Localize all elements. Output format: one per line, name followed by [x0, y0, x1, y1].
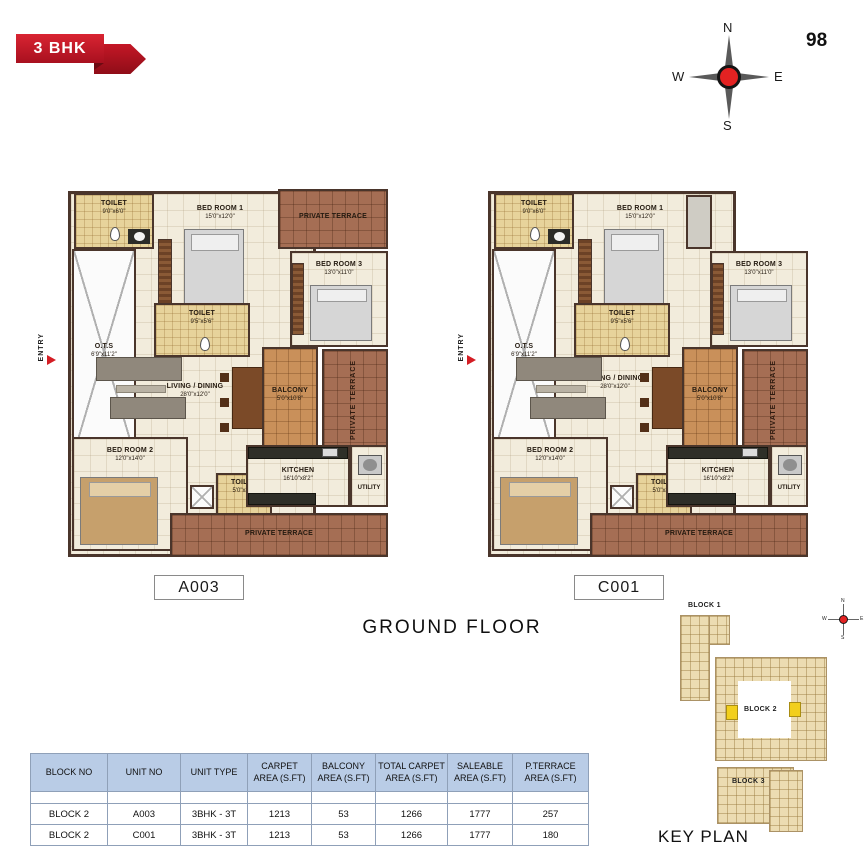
col-header: SALEABLE AREA (S.FT): [448, 754, 513, 792]
bedroom-3-room: BED ROOM 3 13'0"x11'0": [710, 251, 808, 347]
cell: 3BHK - 3T: [181, 804, 248, 825]
private-terrace-top: PRIVATE TERRACE: [278, 189, 388, 249]
sofa-icon: [516, 357, 602, 381]
col-header: TOTAL CARPET AREA (S.FT): [376, 754, 448, 792]
block-3-cluster: [769, 770, 803, 832]
table-header-row: BLOCK NO UNIT NO UNIT TYPE CARPET AREA (…: [31, 754, 589, 792]
floorplan-a003: TOILET 9'0"x6'0" PRIVATE TERRACE BED ROO…: [60, 185, 390, 605]
cell: 180: [513, 825, 589, 846]
compass-east-label: E: [774, 69, 783, 84]
ots-shaft: O.T.S 6'9"x11'2": [72, 249, 136, 455]
bed-icon: [730, 285, 792, 341]
compass-center-dot: [717, 65, 741, 89]
cell: 1777: [448, 825, 513, 846]
mini-compass-icon: N S W E: [826, 601, 860, 639]
cell: C001: [108, 825, 181, 846]
key-plan: BLOCK 1 BLOCK 2 BLOCK 3 N S W E KEY PLAN: [648, 593, 864, 855]
cell: 1213: [248, 804, 312, 825]
bed-icon: [604, 229, 664, 305]
entry-arrow-icon: [467, 355, 476, 365]
kitchen-room: KITCHEN 16'10"x8'2": [246, 445, 350, 507]
cell: 1777: [448, 804, 513, 825]
col-header: UNIT TYPE: [181, 754, 248, 792]
bed-icon: [80, 477, 158, 545]
block-2-label: BLOCK 2: [744, 706, 777, 713]
balcony: BALCONY 5'0"x10'8": [262, 347, 318, 447]
cell: A003: [108, 804, 181, 825]
brochure-page: 3 BHK N S W E 98 TOILET 9'0"x6'0" PRIVAT…: [0, 0, 864, 864]
block-1-label: BLOCK 1: [688, 602, 721, 609]
col-header: P.TERRACE AREA (S.FT): [513, 754, 589, 792]
ots-shaft: O.T.S 6'9"x11'2": [492, 249, 556, 455]
cell: 257: [513, 804, 589, 825]
wardrobe-icon: [712, 263, 724, 335]
dining-chairs-icon: [220, 373, 229, 382]
washbasin-icon: [128, 229, 150, 244]
floorplan-c001: TOILET 9'0"x6'0" BED ROOM 1 15'0"x12'0" …: [480, 185, 810, 605]
entry-arrow-icon: [47, 355, 56, 365]
sofa-icon: [96, 357, 182, 381]
floor-title: GROUND FLOOR: [332, 617, 572, 639]
unit-number-a003: A003: [154, 575, 244, 600]
entry-marker: ENTRY: [458, 333, 474, 389]
bed-icon: [500, 477, 578, 545]
toilet-icon: [110, 227, 120, 241]
cell: 53: [312, 804, 376, 825]
col-header: BALCONY AREA (S.FT): [312, 754, 376, 792]
spacer-row: [31, 792, 589, 804]
key-plan-title: KEY PLAN: [658, 827, 749, 847]
toilet-icon: [200, 337, 210, 351]
rug-icon: [116, 385, 166, 393]
toilet-icon: [620, 337, 630, 351]
sofa-icon: [530, 397, 606, 419]
col-header: CARPET AREA (S.FT): [248, 754, 312, 792]
cell: BLOCK 2: [31, 804, 108, 825]
entry-marker: ENTRY: [38, 333, 54, 389]
highlighted-unit-a003: [726, 705, 738, 720]
bhk-type-badge: 3 BHK: [16, 34, 104, 63]
bedroom-3-room: BED ROOM 3 13'0"x11'0": [290, 251, 388, 347]
toilet-2-room: TOILET 9'5"x5'6": [154, 303, 250, 357]
private-terrace-side: PRIVATE TERRACE: [322, 349, 388, 447]
table-row: BLOCK 2 A003 3BHK - 3T 1213 53 1266 1777…: [31, 804, 589, 825]
cell: 53: [312, 825, 376, 846]
table-row: BLOCK 2 C001 3BHK - 3T 1213 53 1266 1777…: [31, 825, 589, 846]
shaft-box: [610, 485, 634, 509]
highlighted-unit-c001: [789, 702, 801, 717]
bedroom-1-label: BED ROOM 1 15'0"x12'0": [580, 205, 700, 221]
compass-west-label: W: [672, 69, 684, 84]
bedroom-1-label: BED ROOM 1 15'0"x12'0": [160, 205, 280, 221]
shaft-box: [190, 485, 214, 509]
kitchen-counter-icon: [248, 493, 316, 505]
cell: 1266: [376, 804, 448, 825]
private-terrace-side: PRIVATE TERRACE: [742, 349, 808, 447]
bed-icon: [184, 229, 244, 305]
page-number: 98: [806, 30, 827, 52]
private-terrace-bottom: PRIVATE TERRACE: [170, 513, 388, 557]
balcony: BALCONY 5'0"x10'8": [682, 347, 738, 447]
rug-icon: [536, 385, 586, 393]
area-table: BLOCK NO UNIT NO UNIT TYPE CARPET AREA (…: [30, 753, 589, 846]
mini-compass-dot: [839, 615, 848, 624]
cell: 3BHK - 3T: [181, 825, 248, 846]
lobby-box: [686, 195, 712, 249]
toilet-1-room: TOILET 9'0"x6'0": [494, 193, 574, 249]
cell: 1213: [248, 825, 312, 846]
sink-icon: [322, 448, 338, 457]
block-3-label: BLOCK 3: [732, 778, 765, 785]
toilet-icon: [530, 227, 540, 241]
private-terrace-bottom: PRIVATE TERRACE: [590, 513, 808, 557]
compass-north-label: N: [723, 20, 732, 35]
sofa-icon: [110, 397, 186, 419]
bed-icon: [310, 285, 372, 341]
kitchen-room: KITCHEN 16'10"x8'2": [666, 445, 770, 507]
kitchen-counter-icon: [668, 493, 736, 505]
washbasin-icon: [548, 229, 570, 244]
block-1-cluster: [680, 615, 710, 701]
dining-chairs-icon: [640, 373, 649, 382]
washer-icon: [358, 455, 382, 475]
cell: 1266: [376, 825, 448, 846]
toilet-2-room: TOILET 9'5"x5'6": [574, 303, 670, 357]
sink-icon: [742, 448, 758, 457]
utility-room: UTILITY: [350, 445, 388, 507]
ribbon-fold-shape: [94, 63, 104, 70]
cell: BLOCK 2: [31, 825, 108, 846]
compass-south-label: S: [723, 118, 732, 133]
wardrobe-icon: [292, 263, 304, 335]
toilet-1-room: TOILET 9'0"x6'0": [74, 193, 154, 249]
col-header: UNIT NO: [108, 754, 181, 792]
col-header: BLOCK NO: [31, 754, 108, 792]
washer-icon: [778, 455, 802, 475]
utility-room: UTILITY: [770, 445, 808, 507]
compass-rose-icon: N S W E: [674, 22, 784, 132]
